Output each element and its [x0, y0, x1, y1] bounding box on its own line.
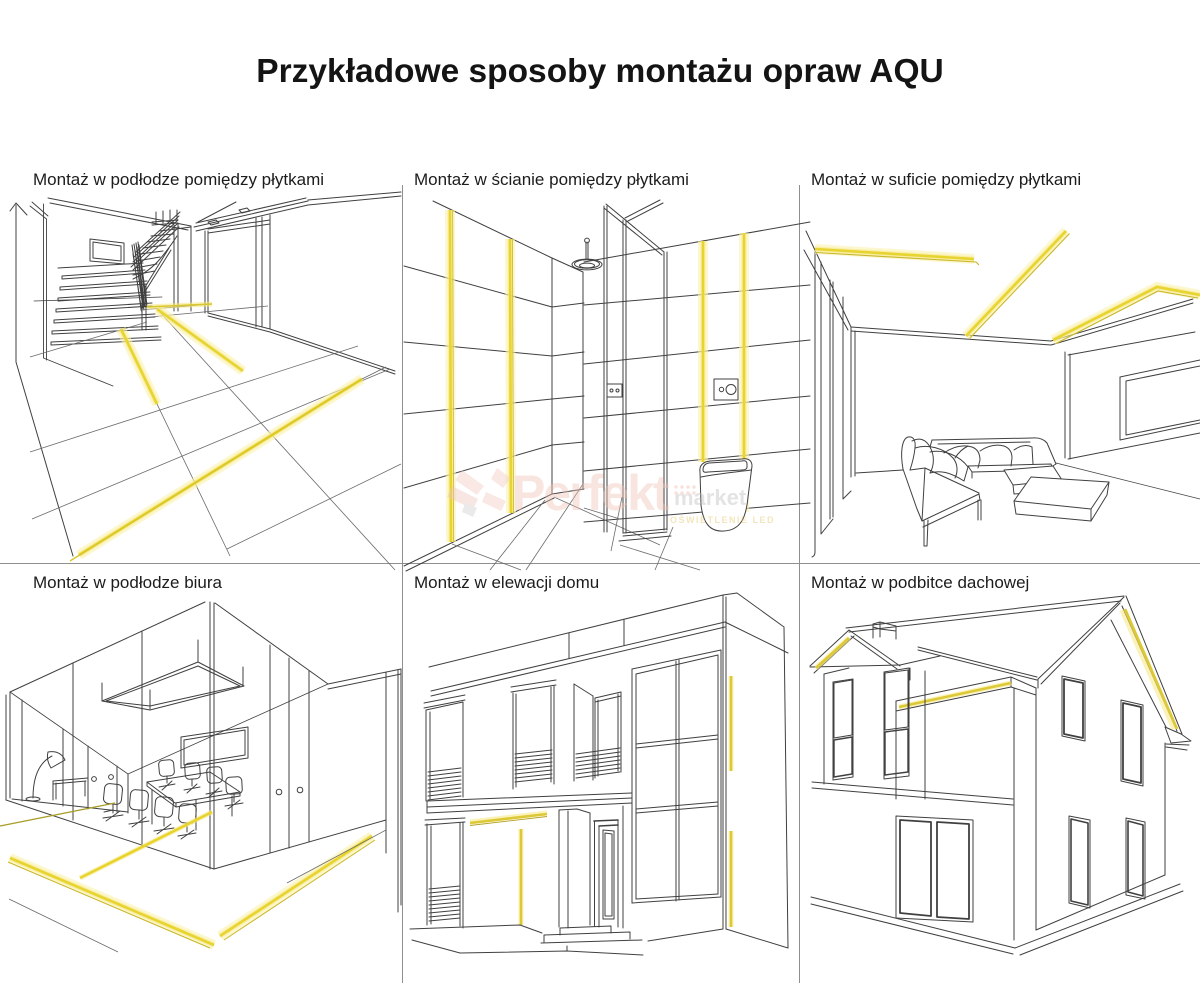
svg-text:Perfekt: Perfekt [512, 465, 670, 521]
svg-text:OŚWIETLENIE LED: OŚWIETLENIE LED [670, 514, 775, 525]
svg-text:market: market [674, 485, 747, 510]
